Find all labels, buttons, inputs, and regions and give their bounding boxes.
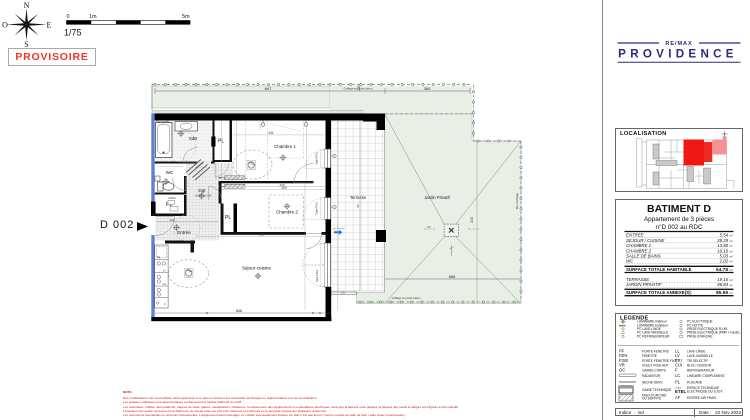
svg-text:Cui: Cui	[163, 283, 167, 286]
svg-text:215: 215	[470, 217, 474, 223]
svg-text:m²: m²	[729, 234, 733, 238]
svg-text:Terrasse: Terrasse	[350, 195, 367, 200]
svg-text:846: 846	[236, 309, 242, 313]
svg-text:PRISE ETANCHE: PRISE ETANCHE	[687, 334, 712, 338]
svg-text:Chambre 1: Chambre 1	[274, 144, 296, 149]
svg-text:PORTE-FENETRE FIXE: PORTE-FENETRE FIXE	[642, 359, 677, 363]
svg-text:m²: m²	[729, 291, 732, 295]
svg-text:Coffret: Coffret	[168, 196, 176, 200]
svg-text:Jardin Privatif: Jardin Privatif	[424, 195, 450, 200]
svg-text:m²: m²	[729, 278, 733, 282]
svg-text:Type PF01: Type PF01	[315, 152, 319, 165]
svg-text:866: 866	[449, 274, 456, 279]
svg-text:BLOC CUISSON: BLOC CUISSON	[687, 364, 712, 368]
svg-text:±0.00 / ht 2.40: ±0.00 / ht 2.40	[195, 194, 212, 198]
svg-text:ETEL: ETEL	[675, 389, 687, 394]
svg-text:SECHE-SERV.: SECHE-SERV.	[642, 381, 664, 385]
svg-text:SURFACE TOTALE ANNEXE(S):: SURFACE TOTALE ANNEXE(S):	[626, 290, 693, 295]
svg-text:m²: m²	[729, 239, 733, 243]
svg-text:Grillage sur plots béton: Grillage sur plots béton	[392, 296, 421, 300]
svg-text:m²: m²	[729, 260, 733, 264]
svg-text:Mur+Grillage: Mur+Grillage	[515, 193, 519, 210]
svg-text:E: E	[47, 21, 52, 30]
svg-text:ELECTRIQUE DU LOGT.: ELECTRIQUE DU LOGT.	[687, 390, 723, 394]
svg-text:240: 240	[169, 218, 174, 222]
svg-text:N: N	[24, 2, 30, 10]
svg-text:LAVE-LINGE: LAVE-LINGE	[687, 350, 706, 354]
svg-text:m²: m²	[729, 244, 733, 248]
svg-text:JARDIN PRIVATIF: JARDIN PRIVATIF	[625, 282, 662, 287]
svg-text:RE/MAX: RE/MAX	[665, 41, 692, 47]
svg-text:F: F	[675, 367, 678, 372]
svg-text:LV: LV	[163, 270, 166, 273]
svg-text:EP: EP	[427, 226, 431, 229]
svg-text:LAVE-VAISSELLE: LAVE-VAISSELLE	[687, 354, 713, 358]
svg-text:VOLET ROULANT: VOLET ROULANT	[642, 364, 669, 368]
svg-text:WC: WC	[166, 170, 174, 175]
svg-text:m²: m²	[729, 268, 732, 272]
svg-text:441: 441	[268, 131, 274, 135]
svg-text:Type PF01: Type PF01	[315, 202, 319, 215]
svg-text:GAINE TECHNIQUE: GAINE TECHNIQUE	[642, 388, 672, 392]
svg-text:TRI SELECTIF: TRI SELECTIF	[687, 359, 708, 363]
svg-text:0: 0	[67, 14, 70, 20]
svg-text:PL: PL	[675, 380, 681, 385]
svg-text:Type PF01: Type PF01	[315, 269, 319, 282]
svg-text:S: S	[24, 40, 28, 48]
svg-text:ENTREE AIR FRAIS: ENTREE AIR FRAIS	[687, 396, 716, 400]
svg-text:Linéaire: Linéaire	[337, 227, 346, 230]
svg-text:WC: WC	[626, 259, 634, 264]
svg-text:LINEAIRE COMPLEMENT.: LINEAIRE COMPLEMENT.	[687, 374, 726, 378]
svg-text:847: 847	[265, 86, 272, 91]
svg-text:Dgt: Dgt	[198, 188, 206, 193]
svg-text:PLACARD: PLACARD	[687, 381, 703, 385]
svg-text:Dpe carrelé: Dpe carrelé	[156, 120, 170, 123]
svg-text:PROVIDENCE: PROVIDENCE	[618, 48, 738, 61]
svg-text:66.84: 66.84	[717, 282, 728, 287]
svg-text:PL: PL	[218, 139, 224, 145]
svg-text:m²: m²	[729, 283, 733, 287]
svg-text:GARDE-CORPS: GARDE-CORPS	[642, 368, 666, 372]
svg-text:690: 690	[259, 232, 265, 236]
svg-text:Chambre 2: Chambre 2	[276, 210, 298, 215]
svg-text:PORTE-FENETRE: PORTE-FENETRE	[642, 350, 669, 354]
svg-text:1m: 1m	[89, 14, 97, 20]
svg-text:O: O	[2, 21, 8, 30]
svg-text:Séjour-cuisine: Séjour-cuisine	[242, 266, 272, 271]
svg-text:m²: m²	[729, 255, 733, 259]
svg-text:GC: GC	[619, 367, 625, 372]
svg-text:m²: m²	[729, 249, 733, 253]
svg-text:360: 360	[424, 86, 431, 91]
svg-text:RADIATEUR: RADIATEUR	[642, 374, 661, 378]
svg-text:5m: 5m	[182, 14, 190, 20]
svg-text:OU SOFFITE: OU SOFFITE	[642, 397, 661, 401]
svg-text:FENETRE: FENETRE	[642, 354, 657, 358]
svg-text:TRI: TRI	[157, 256, 161, 259]
svg-text:Grillage sur plots béton: Grillage sur plots béton	[344, 87, 373, 91]
svg-text:PL: PL	[225, 215, 231, 221]
svg-text:REFRIGERATEUR: REFRIGERATEUR	[687, 368, 715, 372]
svg-text:2.02: 2.02	[719, 259, 729, 264]
svg-text:PC REFRIGERATEUR: PC REFRIGERATEUR	[637, 334, 670, 338]
svg-text:1/75: 1/75	[64, 28, 82, 38]
svg-text:400: 400	[281, 186, 287, 190]
svg-text:SURFACE TOTALE HABITABLE: SURFACE TOTALE HABITABLE	[626, 267, 692, 272]
svg-text:Entrée: Entrée	[177, 230, 191, 235]
svg-text:SdB: SdB	[189, 136, 197, 141]
svg-text:AF: AF	[675, 395, 681, 400]
svg-text:LC: LC	[675, 373, 680, 378]
